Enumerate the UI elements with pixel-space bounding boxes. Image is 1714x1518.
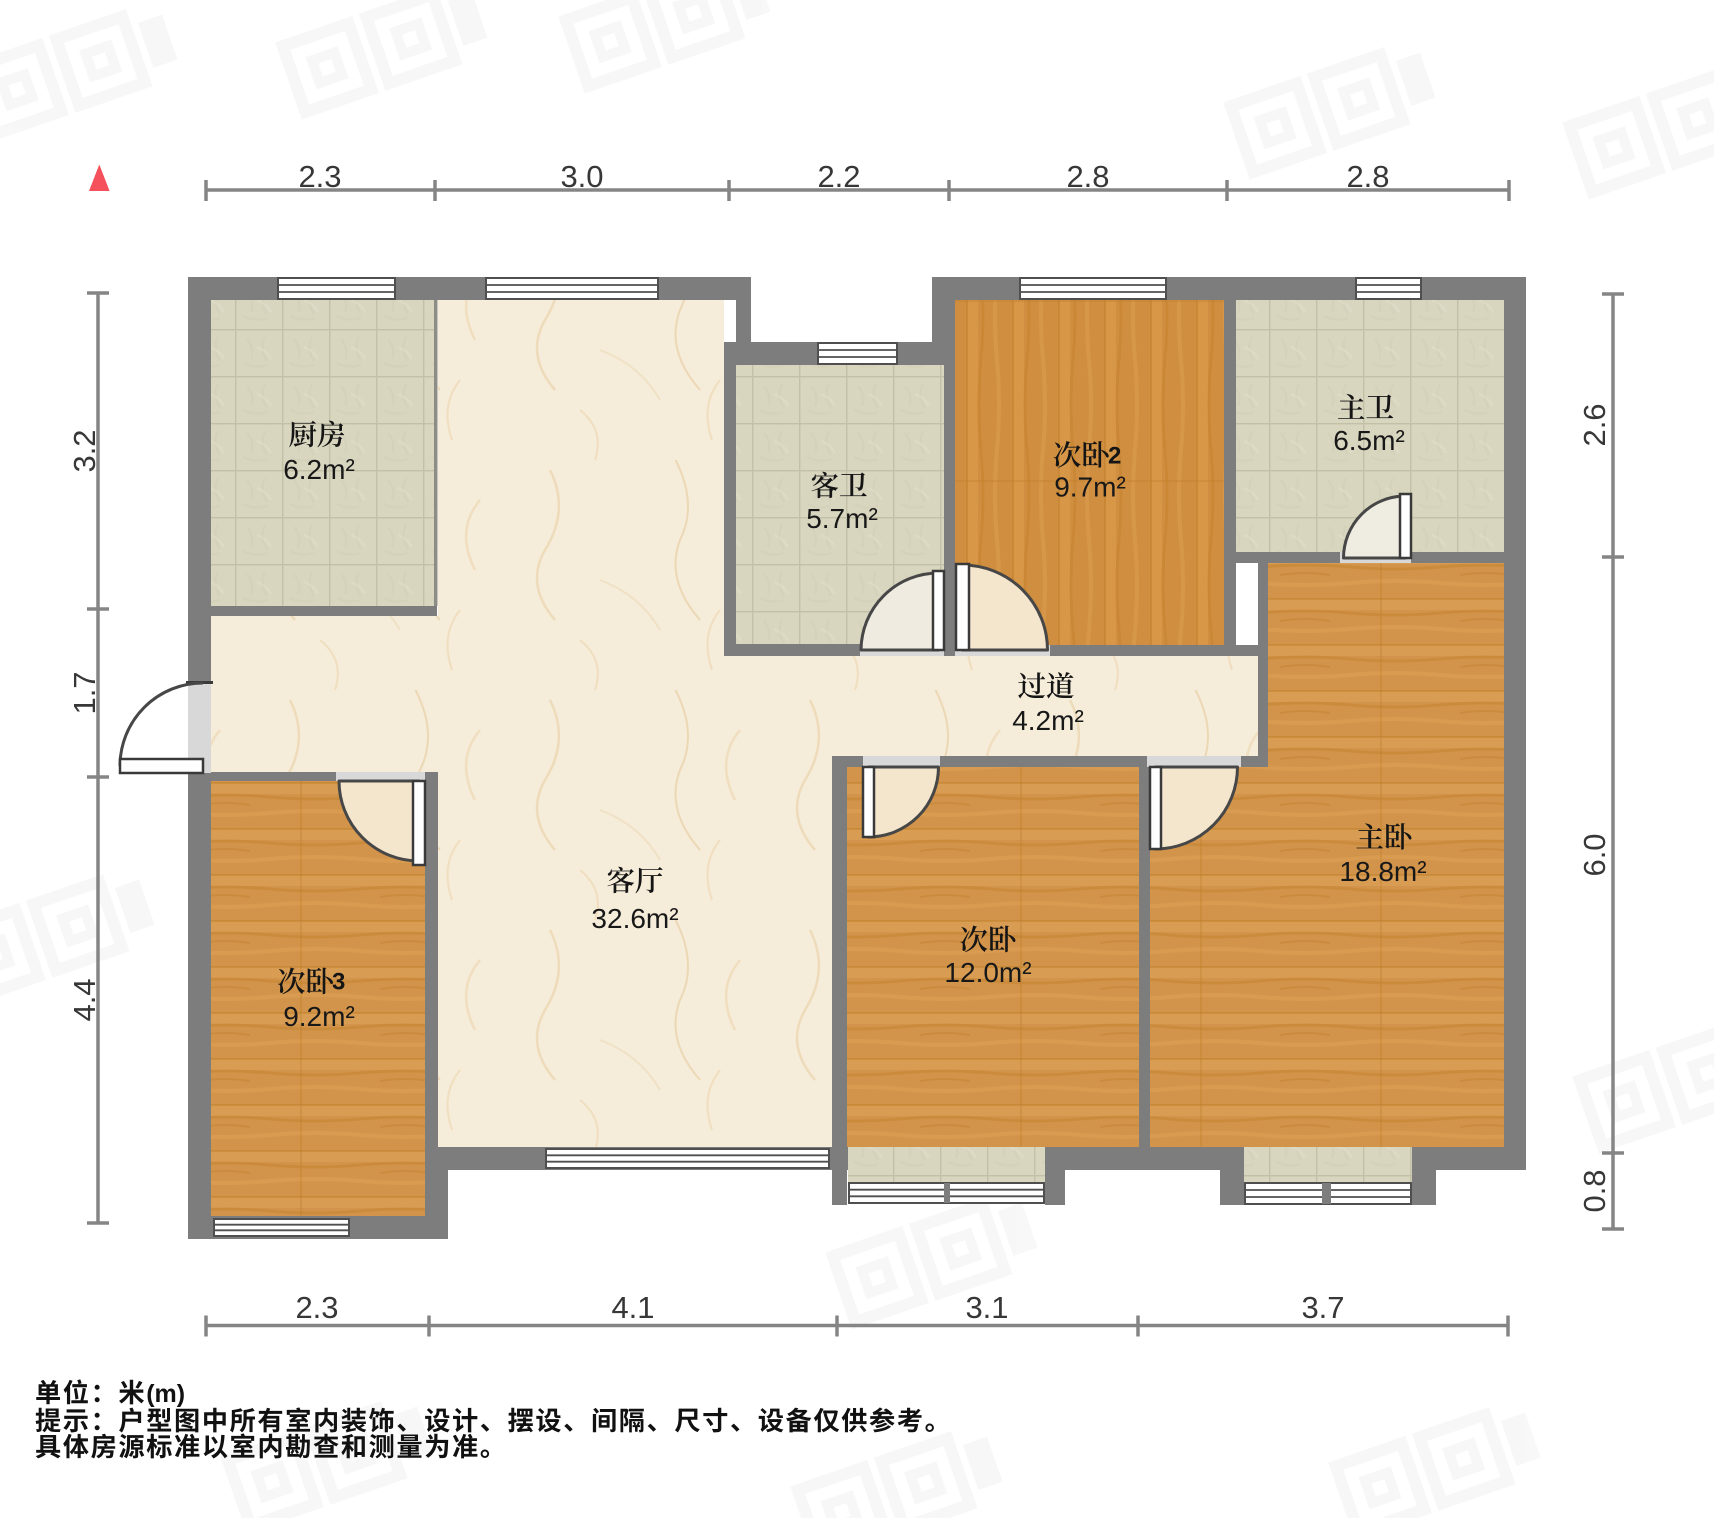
svg-text:6.2m²: 6.2m² xyxy=(283,454,355,485)
svg-text:1.7: 1.7 xyxy=(67,671,102,714)
svg-text:(m): (m) xyxy=(146,1380,185,1408)
svg-text:2.2: 2.2 xyxy=(817,159,860,194)
svg-text:6.0: 6.0 xyxy=(1577,833,1612,876)
svg-text:2: 2 xyxy=(1108,443,1121,470)
svg-text:6.5m²: 6.5m² xyxy=(1333,425,1405,456)
svg-text:32.6m²: 32.6m² xyxy=(591,903,678,934)
svg-text:3.7: 3.7 xyxy=(1301,1290,1344,1325)
svg-text:2.8: 2.8 xyxy=(1346,159,1389,194)
svg-text:3.1: 3.1 xyxy=(965,1290,1008,1325)
svg-text:2.3: 2.3 xyxy=(298,159,341,194)
svg-text:12.0m²: 12.0m² xyxy=(944,957,1031,988)
svg-text:4.2m²: 4.2m² xyxy=(1012,705,1084,736)
svg-text:2.8: 2.8 xyxy=(1066,159,1109,194)
svg-text:2.3: 2.3 xyxy=(295,1290,338,1325)
svg-text:4.4: 4.4 xyxy=(67,978,102,1021)
svg-text:5.7m²: 5.7m² xyxy=(806,503,878,534)
svg-text:4.1: 4.1 xyxy=(611,1290,654,1325)
svg-text:3: 3 xyxy=(332,969,345,996)
svg-text:0.8: 0.8 xyxy=(1577,1169,1612,1212)
svg-text:18.8m²: 18.8m² xyxy=(1339,856,1426,887)
svg-text:3.2: 3.2 xyxy=(67,429,102,472)
svg-text:9.2m²: 9.2m² xyxy=(283,1001,355,1032)
svg-text:2.6: 2.6 xyxy=(1577,403,1612,446)
svg-text:3.0: 3.0 xyxy=(560,159,603,194)
svg-text:9.7m²: 9.7m² xyxy=(1054,472,1126,503)
